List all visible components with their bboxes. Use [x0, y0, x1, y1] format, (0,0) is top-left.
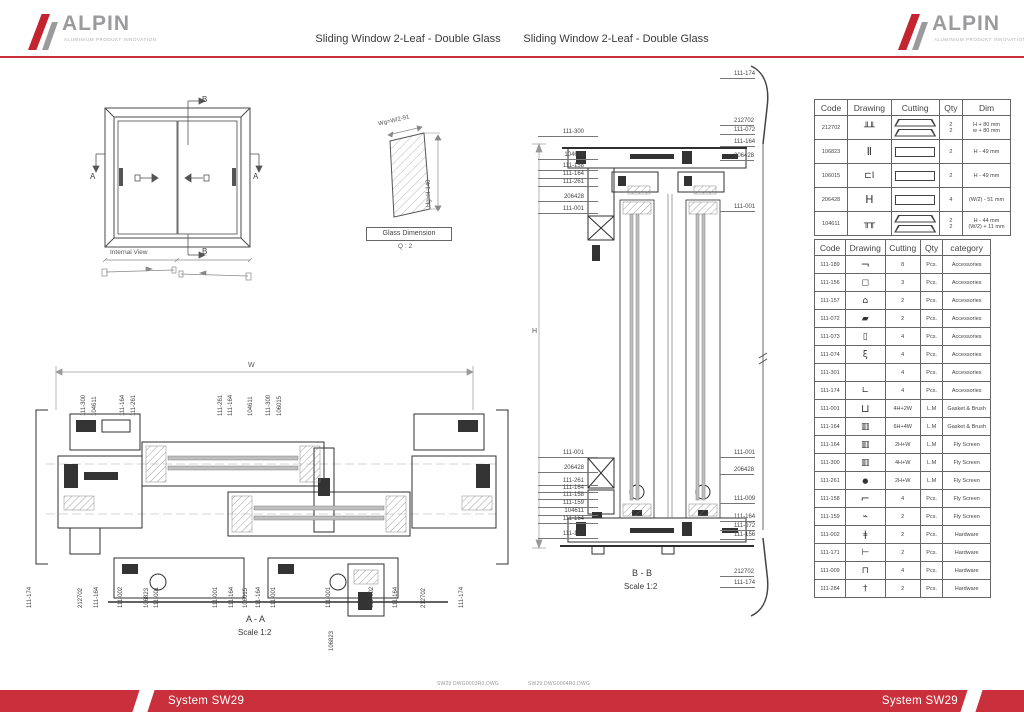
- part-label: 111-001: [271, 587, 278, 608]
- cutting-shape-icon: [895, 195, 935, 205]
- part-code: 111-157: [815, 292, 846, 310]
- part-label: 111-156: [734, 532, 755, 540]
- part-dim: (W/2) - 51 mm: [962, 188, 1010, 212]
- part-category: Accessories: [943, 364, 991, 382]
- part-label: 111-174: [734, 580, 755, 588]
- section-marker-a-right: A: [253, 172, 258, 181]
- col-header-drawing: Drawing: [846, 240, 886, 256]
- part-category: Hardware: [943, 562, 991, 580]
- part-label: 111-174: [459, 587, 466, 608]
- part-cutting: 6H+4W: [885, 418, 920, 436]
- part-label: 111-300: [538, 129, 584, 137]
- system-name-left: System SW29: [168, 690, 244, 712]
- table-row: 106823 2 H - 49 mm: [815, 140, 1011, 164]
- part-qty: Pcs.: [920, 580, 943, 598]
- table-row: 111-301 4 Pcs. Accessories: [815, 364, 991, 382]
- part-qty: 2: [939, 140, 962, 164]
- col-header-qty: Qty: [920, 240, 943, 256]
- part-label: 104611: [248, 396, 255, 416]
- section-marker-b-bottom: B: [202, 247, 207, 256]
- part-code: 111-073: [815, 328, 846, 346]
- col-header-code: Code: [815, 100, 848, 116]
- part-qty: 2 2: [939, 116, 962, 140]
- part-cutting: 2: [885, 580, 920, 598]
- part-label: 111-001: [538, 206, 584, 214]
- part-code: 111-164: [815, 436, 846, 454]
- part-drawing-icon: [861, 548, 869, 558]
- section-aa-caption: A - A: [246, 614, 265, 624]
- parts-list-table: Code Drawing Cutting Qty category 111-18…: [814, 239, 991, 598]
- part-code: 111-158: [815, 490, 846, 508]
- part-drawing-icon: [861, 440, 870, 450]
- table-row: 111-164 2H+W L.M Fly Screen: [815, 436, 991, 454]
- part-drawing-icon: [861, 458, 870, 468]
- part-qty: Pcs.: [920, 256, 943, 274]
- section-marker-a-left: A: [90, 172, 95, 181]
- part-label: 206428: [538, 194, 584, 202]
- table-row: 111-300 4H+W L.M Fly Screen: [815, 454, 991, 472]
- part-label: 111-174: [734, 71, 755, 79]
- part-label: 111-164: [228, 395, 235, 416]
- table-row: 111-009 4 Pcs. Hardware: [815, 562, 991, 580]
- col-header-dim: Dim: [962, 100, 1010, 116]
- part-drawing-icon: [862, 296, 868, 306]
- part-code: 111-189: [815, 256, 846, 274]
- part-qty: Pcs.: [920, 508, 943, 526]
- part-qty: 4: [939, 188, 962, 212]
- part-qty: Pcs.: [920, 328, 943, 346]
- part-cutting: 4: [885, 490, 920, 508]
- part-drawing-icon: [864, 123, 875, 133]
- logo-tagline: ALUMINIUM PRODUKT INNOVATION: [934, 37, 1024, 42]
- part-category: Gasket & Brush: [943, 400, 991, 418]
- part-qty: Pcs.: [920, 382, 943, 400]
- cut-list-table: Code Drawing Cutting Qty Dim 212702 2 2 …: [814, 99, 1011, 236]
- table-row: 111-002 2 Pcs. Hardware: [815, 526, 991, 544]
- part-label: 111-164: [734, 514, 755, 522]
- part-cutting: 4H+W: [885, 454, 920, 472]
- part-code: 111-171: [815, 544, 846, 562]
- alpin-logo: ALPIN ALUMINIUM PRODUKT INNOVATION: [26, 10, 156, 56]
- part-qty: Pcs.: [920, 526, 943, 544]
- part-code: 111-301: [815, 364, 846, 382]
- part-code: 111-001: [815, 400, 846, 418]
- table-row: 111-157 2 Pcs. Accessories: [815, 292, 991, 310]
- part-category: Fly Screen: [943, 490, 991, 508]
- part-label: 104611: [92, 396, 99, 416]
- part-label: 111-157: [538, 531, 584, 539]
- part-category: Fly Screen: [943, 508, 991, 526]
- cutting-shape-icon: [895, 171, 935, 181]
- col-header-drawing: Drawing: [848, 100, 891, 116]
- part-cutting: 4: [885, 562, 920, 580]
- part-qty: Pcs.: [920, 346, 943, 364]
- part-dim: H + 80 mm w + 80 mm: [962, 116, 1010, 140]
- part-drawing-icon: [861, 386, 869, 396]
- alpin-logo: ALPIN ALUMINIUM PRODUKT INNOVATION: [896, 10, 1024, 56]
- part-label: 111-164: [120, 395, 127, 416]
- part-drawing-icon: [864, 171, 874, 181]
- part-label: 106015: [277, 396, 284, 416]
- col-header-cutting: Cutting: [891, 100, 939, 116]
- part-label: 111-001: [326, 587, 333, 608]
- part-code: 111-009: [815, 562, 846, 580]
- col-header-category: category: [943, 240, 991, 256]
- part-category: Hardware: [943, 580, 991, 598]
- part-cutting: 4: [885, 328, 920, 346]
- part-label: 106015: [243, 588, 250, 608]
- part-cutting: 2H+W: [885, 472, 920, 490]
- part-code: 111-156: [815, 274, 846, 292]
- glass-dimension-caption: Glass Dimension: [366, 227, 452, 241]
- section-bb-drawing: H 111-300104611111-158111-164111-2612064…: [532, 60, 787, 625]
- alpin-logo-icon: [26, 14, 60, 50]
- part-label: 111-261: [538, 179, 584, 187]
- part-label: 111-261: [131, 395, 138, 416]
- file-name-left: SW29 DWG0003R0.DWG: [437, 681, 499, 687]
- part-label: 111-001: [734, 204, 755, 212]
- part-label: 111-001: [154, 587, 161, 608]
- file-name-right: SW29 DWG0004R0.DWG: [528, 681, 590, 687]
- part-label: 111-009: [734, 496, 755, 504]
- part-qty: L.M: [920, 400, 943, 418]
- part-label: 111-300: [266, 395, 273, 416]
- part-label: 106823: [144, 588, 151, 608]
- table-row: 111-001 4H+2W L.M Gasket & Brush: [815, 400, 991, 418]
- section-marker-b-top: B: [202, 95, 207, 104]
- part-category: Accessories: [943, 328, 991, 346]
- part-category: Hardware: [943, 526, 991, 544]
- part-label: 212702: [421, 588, 428, 608]
- table-header-row: Code Drawing Cutting Qty Dim: [815, 100, 1011, 116]
- col-header-code: Code: [815, 240, 846, 256]
- table-row: 206428 4 (W/2) - 51 mm: [815, 188, 1011, 212]
- part-label: 111-300: [81, 395, 88, 416]
- part-cutting: 3: [885, 274, 920, 292]
- part-dim: H - 44 mm (W/2) + 11 mm: [962, 212, 1010, 236]
- part-drawing-icon: [861, 405, 870, 415]
- part-label: 104611: [538, 152, 584, 160]
- glass-qty-note: Q : 2: [398, 243, 412, 250]
- part-code: 111-284: [815, 580, 846, 598]
- section-bb-scale: Scale 1:2: [624, 582, 657, 591]
- part-category: Gasket & Brush: [943, 418, 991, 436]
- table-row: 104611 2 2 H - 44 mm (W/2) + 11 mm: [815, 212, 1011, 236]
- part-qty: 2: [939, 164, 962, 188]
- part-cutting: 2: [885, 310, 920, 328]
- table-row: 111-074 4 Pcs. Accessories: [815, 346, 991, 364]
- section-aa-scale: Scale 1:2: [238, 628, 271, 637]
- part-code: 111-261: [815, 472, 846, 490]
- part-label: 212702: [78, 588, 85, 608]
- part-category: Fly Screen: [943, 436, 991, 454]
- drawing-sheet: ALPIN ALUMINIUM PRODUKT INNOVATION ALPIN…: [0, 0, 1024, 724]
- part-qty: Pcs.: [920, 544, 943, 562]
- part-label: 111-164: [229, 587, 236, 608]
- part-cutting: 2H+W: [885, 436, 920, 454]
- glass-height-dim: Hg=H-140: [426, 179, 432, 207]
- logo-brand-text: ALPIN: [62, 12, 130, 36]
- part-code: 111-164: [815, 418, 846, 436]
- part-code: 104611: [815, 212, 848, 236]
- bb-height-dim-label: H: [532, 328, 537, 335]
- part-cutting: 2: [885, 544, 920, 562]
- part-cutting: 8: [885, 256, 920, 274]
- part-label: 104611: [538, 508, 584, 516]
- part-label: 111-158: [538, 492, 584, 500]
- part-label: 111-164: [538, 516, 584, 524]
- part-qty: Pcs.: [920, 310, 943, 328]
- part-drawing-icon: [861, 261, 870, 271]
- part-code: 111-074: [815, 346, 846, 364]
- part-drawing-icon: [861, 422, 870, 432]
- part-qty: L.M: [920, 472, 943, 490]
- part-label: 111-001: [213, 587, 220, 608]
- part-category: Accessories: [943, 382, 991, 400]
- part-label: 111-164: [538, 171, 584, 179]
- table-row: 111-284 2 Pcs. Hardware: [815, 580, 991, 598]
- cutting-shape-icon: [894, 215, 936, 233]
- logo-brand-text: ALPIN: [932, 12, 1000, 36]
- part-qty: Pcs.: [920, 490, 943, 508]
- part-label: 111-001: [538, 450, 584, 458]
- part-qty: L.M: [920, 418, 943, 436]
- part-drawing-icon: [864, 219, 875, 229]
- part-code: 111-072: [815, 310, 846, 328]
- part-category: Accessories: [943, 292, 991, 310]
- part-qty: Pcs.: [920, 292, 943, 310]
- part-label: 111-164: [393, 587, 400, 608]
- glass-dimension-svg: [358, 105, 473, 265]
- part-code: 106015: [815, 164, 848, 188]
- part-category: Accessories: [943, 346, 991, 364]
- part-dim: H - 49 mm: [962, 164, 1010, 188]
- part-drawing-icon: [863, 332, 868, 342]
- part-category: Accessories: [943, 256, 991, 274]
- part-code: 106823: [815, 140, 848, 164]
- internal-view-caption: Internal View: [110, 249, 147, 256]
- part-qty: Pcs.: [920, 562, 943, 580]
- alpin-logo-icon: [896, 14, 930, 50]
- aa-width-dim-label: W: [248, 362, 255, 369]
- part-drawing-icon: [865, 196, 873, 206]
- part-drawing-icon: [862, 314, 869, 324]
- part-drawing-icon: [862, 566, 869, 576]
- part-qty: L.M: [920, 454, 943, 472]
- part-label: 111-002: [369, 587, 376, 608]
- part-cutting: 2: [885, 526, 920, 544]
- internal-view-svg: [88, 88, 278, 288]
- table-row: 111-261 2H+W L.M Fly Screen: [815, 472, 991, 490]
- part-label: 206428: [538, 465, 584, 473]
- part-code: 111-159: [815, 508, 846, 526]
- part-label: 106823: [329, 631, 336, 651]
- part-code: 111-300: [815, 454, 846, 472]
- section-aa-drawing: W 111-300104611111-164111-261111-261111-…: [18, 352, 523, 672]
- part-label: 111-164: [734, 139, 755, 147]
- part-label: 111-164: [256, 587, 263, 608]
- part-cutting: 2: [885, 292, 920, 310]
- part-category: Fly Screen: [943, 472, 991, 490]
- logo-tagline: ALUMINIUM PRODUKT INNOVATION: [64, 37, 156, 42]
- part-label: 111-261: [218, 395, 225, 416]
- glass-dimension-drawing: Wg=W/2-91 Hg=H-140 Glass Dimension Q : 2: [358, 105, 473, 265]
- part-cutting: 4: [885, 382, 920, 400]
- table-header-row: Code Drawing Cutting Qty category: [815, 240, 991, 256]
- part-label: 111-001: [734, 450, 755, 458]
- cutting-shape-icon: [895, 147, 935, 157]
- part-cutting: 2: [885, 508, 920, 526]
- part-category: Accessories: [943, 274, 991, 292]
- part-qty: L.M: [920, 436, 943, 454]
- part-code: 111-174: [815, 382, 846, 400]
- section-bb-caption: B - B: [632, 568, 652, 578]
- part-label: 111-072: [734, 523, 755, 531]
- internal-view-drawing: A A B B Internal View: [88, 88, 278, 288]
- part-label: 212702: [734, 118, 754, 126]
- cutting-shape-icon: [894, 119, 936, 137]
- part-drawing-icon: [863, 584, 868, 594]
- col-header-cutting: Cutting: [885, 240, 920, 256]
- part-dim: H - 49 mm: [962, 140, 1010, 164]
- part-label: 111-164: [94, 587, 101, 608]
- table-row: 111-159 2 Pcs. Fly Screen: [815, 508, 991, 526]
- table-row: 111-156 3 Pcs. Accessories: [815, 274, 991, 292]
- part-drawing-icon: [862, 476, 868, 486]
- table-row: 111-158 4 Pcs. Fly Screen: [815, 490, 991, 508]
- table-row: 212702 2 2 H + 80 mm w + 80 mm: [815, 116, 1011, 140]
- header-rule: [0, 56, 1024, 58]
- part-qty: Pcs.: [920, 274, 943, 292]
- part-label: 111-158: [538, 163, 584, 171]
- part-drawing-icon: [863, 350, 868, 360]
- part-label: 111-159: [538, 500, 584, 508]
- footer-bar: [0, 690, 1024, 712]
- part-code: 212702: [815, 116, 848, 140]
- part-drawing-icon: [867, 148, 872, 158]
- part-cutting: 4H+2W: [885, 400, 920, 418]
- part-qty: Pcs.: [920, 364, 943, 382]
- table-row: 111-073 4 Pcs. Accessories: [815, 328, 991, 346]
- part-label: 111-072: [734, 127, 755, 135]
- part-label: 111-002: [118, 587, 125, 608]
- part-label: 206428: [734, 467, 754, 475]
- part-drawing-icon: [862, 278, 869, 288]
- table-row: 111-189 8 Pcs. Accessories: [815, 256, 991, 274]
- system-name-right: System SW29: [882, 690, 958, 712]
- col-header-qty: Qty: [939, 100, 962, 116]
- table-row: 106015 2 H - 49 mm: [815, 164, 1011, 188]
- sheet-title-right: Sliding Window 2-Leaf - Double Glass: [508, 33, 724, 45]
- part-label: 206428: [734, 153, 754, 161]
- part-cutting: 4: [885, 364, 920, 382]
- part-label: 111-174: [27, 587, 34, 608]
- table-row: 111-072 2 Pcs. Accessories: [815, 310, 991, 328]
- part-drawing-icon: [863, 530, 867, 540]
- part-code: 111-002: [815, 526, 846, 544]
- table-row: 111-164 6H+4W L.M Gasket & Brush: [815, 418, 991, 436]
- part-cutting: 4: [885, 346, 920, 364]
- part-category: Fly Screen: [943, 454, 991, 472]
- sheet-title-left: Sliding Window 2-Leaf - Double Glass: [300, 33, 516, 45]
- table-row: 111-171 2 Pcs. Hardware: [815, 544, 991, 562]
- part-drawing-icon: [863, 512, 868, 522]
- part-qty: 2 2: [939, 212, 962, 236]
- part-category: Hardware: [943, 544, 991, 562]
- part-code: 206428: [815, 188, 848, 212]
- part-drawing-icon: [861, 495, 870, 505]
- part-label: 212702: [734, 569, 754, 577]
- table-row: 111-174 4 Pcs. Accessories: [815, 382, 991, 400]
- part-category: Accessories: [943, 310, 991, 328]
